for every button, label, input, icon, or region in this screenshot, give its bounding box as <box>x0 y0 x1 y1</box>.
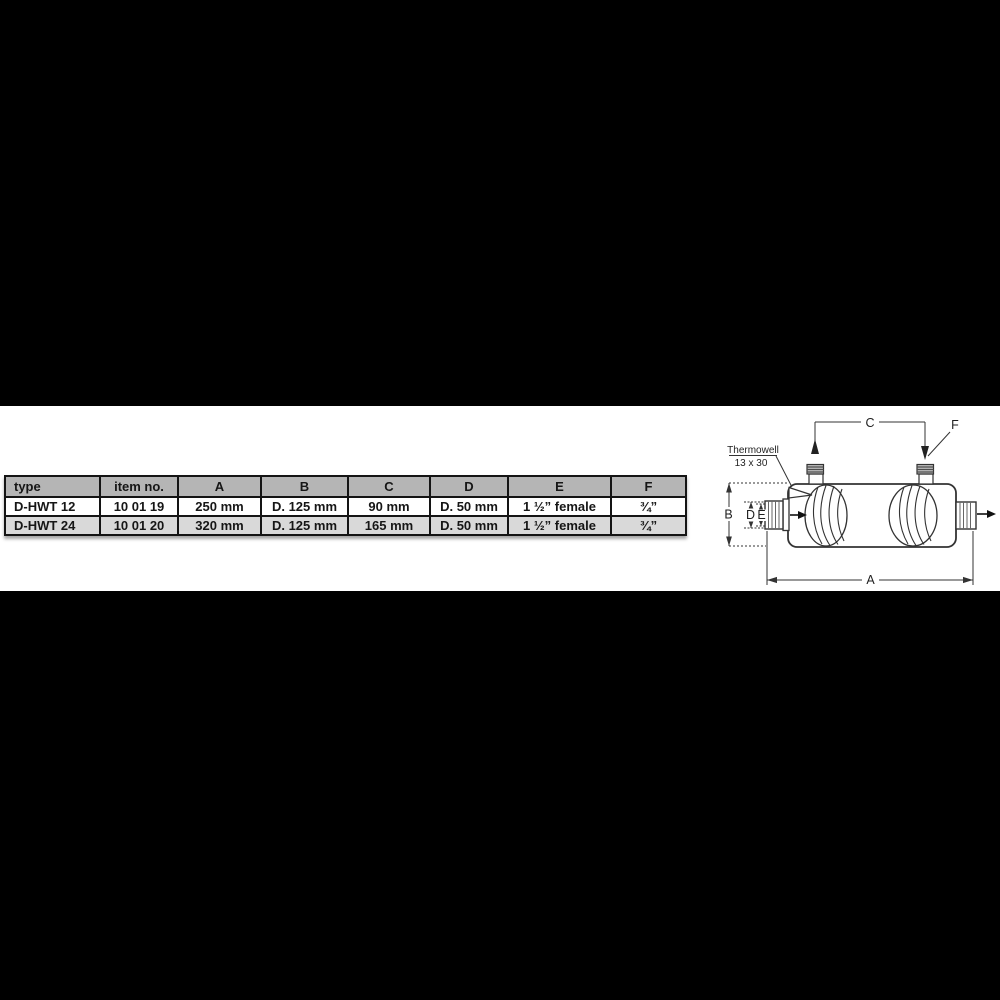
flow-down-arrow-icon <box>921 446 929 460</box>
dim-label-e: E <box>757 508 765 522</box>
dim-label-a: A <box>866 573 875 587</box>
side-port-right <box>956 502 976 529</box>
flow-out-arrow-icon <box>977 510 996 518</box>
label-f: F <box>928 418 959 456</box>
top-port-right <box>917 465 934 485</box>
top-port-left <box>807 465 824 485</box>
dim-label-f: F <box>951 418 959 432</box>
page-background: type item no. A B C D E F D-HWT 12 10 01… <box>0 0 1000 1000</box>
side-port-left <box>765 499 789 531</box>
heat-exchanger-drawing: A B C F Thermowell <box>0 0 1000 1000</box>
dim-label-d: D <box>746 508 755 522</box>
dim-label-b: B <box>724 508 732 522</box>
dim-label-c: C <box>865 416 874 430</box>
flow-up-arrow-icon <box>811 439 819 454</box>
thermowell-text: Thermowell <box>727 445 779 456</box>
thermowell-size-text: 13 x 30 <box>735 458 768 469</box>
dimension-c: C <box>811 414 929 460</box>
thermowell-label: Thermowell 13 x 30 <box>727 445 793 489</box>
